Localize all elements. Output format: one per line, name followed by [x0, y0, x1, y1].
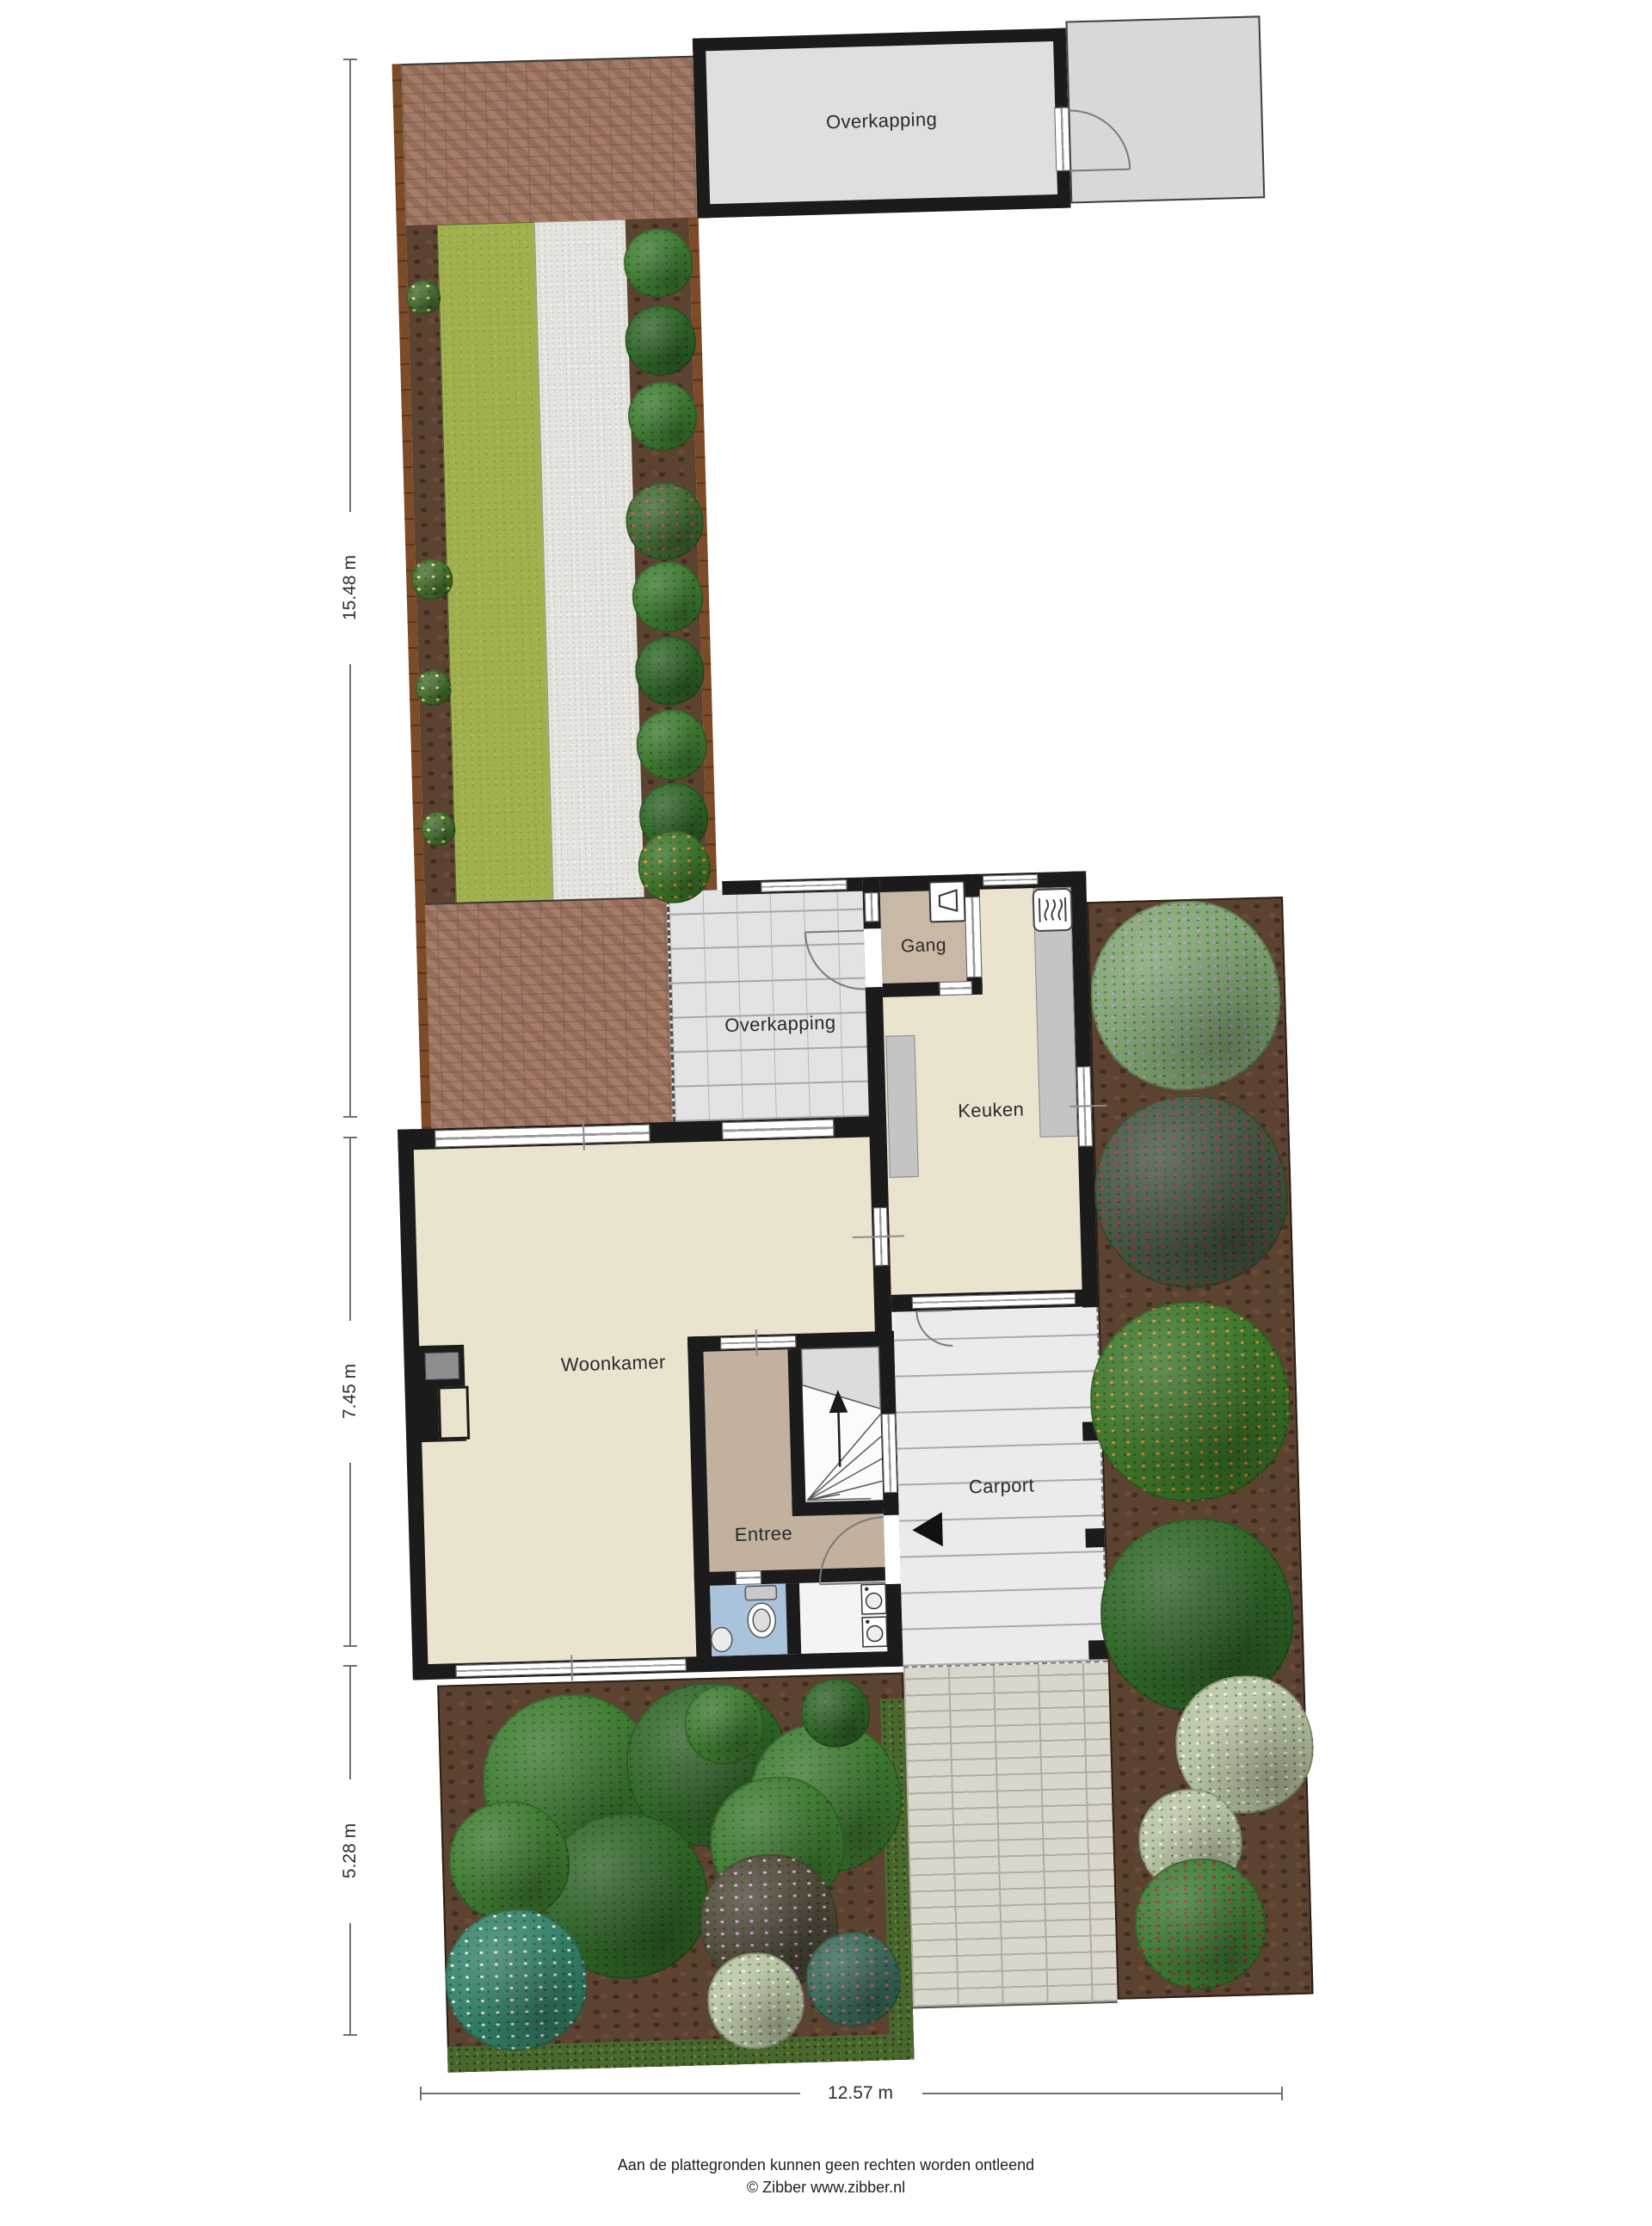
dim-line: [349, 59, 351, 512]
dim-line: [349, 1463, 351, 1646]
disclaimer-text: Aan de plattegronden kunnen geen rechten…: [0, 2156, 1652, 2174]
dim-tick: [343, 1665, 357, 1667]
dim-line: [349, 1138, 351, 1321]
dim-label-12-57: 12.57 m: [828, 2083, 893, 2104]
dim-label-7-45: 7.45 m: [340, 1364, 361, 1419]
dim-tick: [420, 2087, 422, 2100]
dim-line: [349, 1666, 351, 1779]
dim-line: [922, 2093, 1282, 2094]
copyright-text: © Zibber www.zibber.nl: [0, 2179, 1652, 2197]
dim-line: [349, 1923, 351, 2035]
dim-tick: [343, 2034, 357, 2036]
dim-tick: [343, 1645, 357, 1647]
dim-tick: [343, 59, 357, 60]
dimension-annotations: 15.48 m 7.45 m 5.28 m 12.57 m Aan de pla…: [0, 0, 1652, 2203]
dim-line: [420, 2093, 800, 2094]
dim-label-15-48: 15.48 m: [340, 555, 361, 620]
dim-tick: [1281, 2087, 1283, 2100]
dim-tick: [343, 1116, 357, 1118]
dim-line: [349, 664, 351, 1117]
dim-label-5-28: 5.28 m: [340, 1823, 361, 1878]
dim-tick: [343, 1137, 357, 1138]
